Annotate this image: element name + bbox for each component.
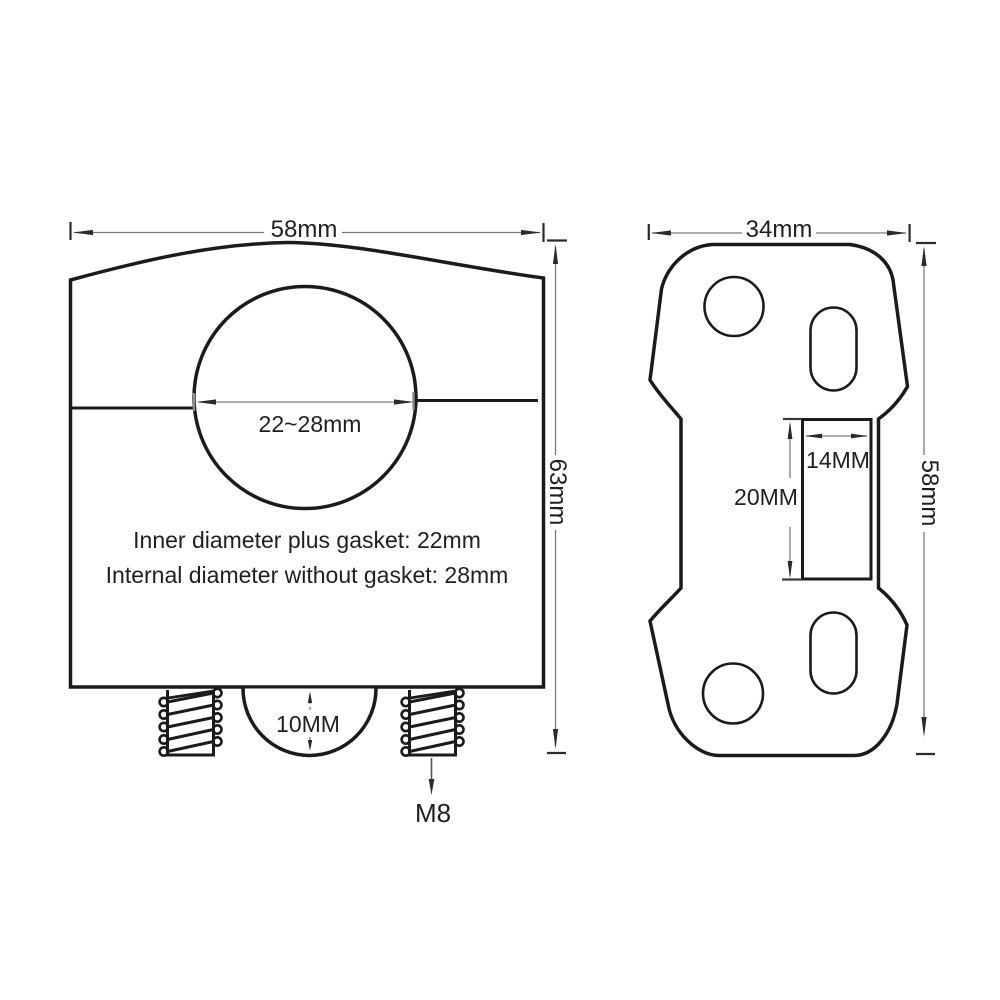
svg-text:Inner diameter plus gasket: 22: Inner diameter plus gasket: 22mm (133, 527, 481, 553)
svg-text:14MM: 14MM (806, 447, 870, 473)
svg-text:Internal diameter without gask: Internal diameter without gasket: 28mm (106, 562, 509, 588)
svg-text:20MM: 20MM (734, 484, 798, 510)
svg-text:34mm: 34mm (746, 216, 813, 243)
svg-text:10MM: 10MM (276, 711, 340, 737)
svg-text:58mm: 58mm (271, 216, 338, 243)
svg-text:M8: M8 (415, 798, 451, 828)
svg-text:63mm: 63mm (544, 459, 571, 526)
svg-text:58mm: 58mm (916, 460, 943, 527)
svg-text:22~28mm: 22~28mm (259, 411, 362, 437)
